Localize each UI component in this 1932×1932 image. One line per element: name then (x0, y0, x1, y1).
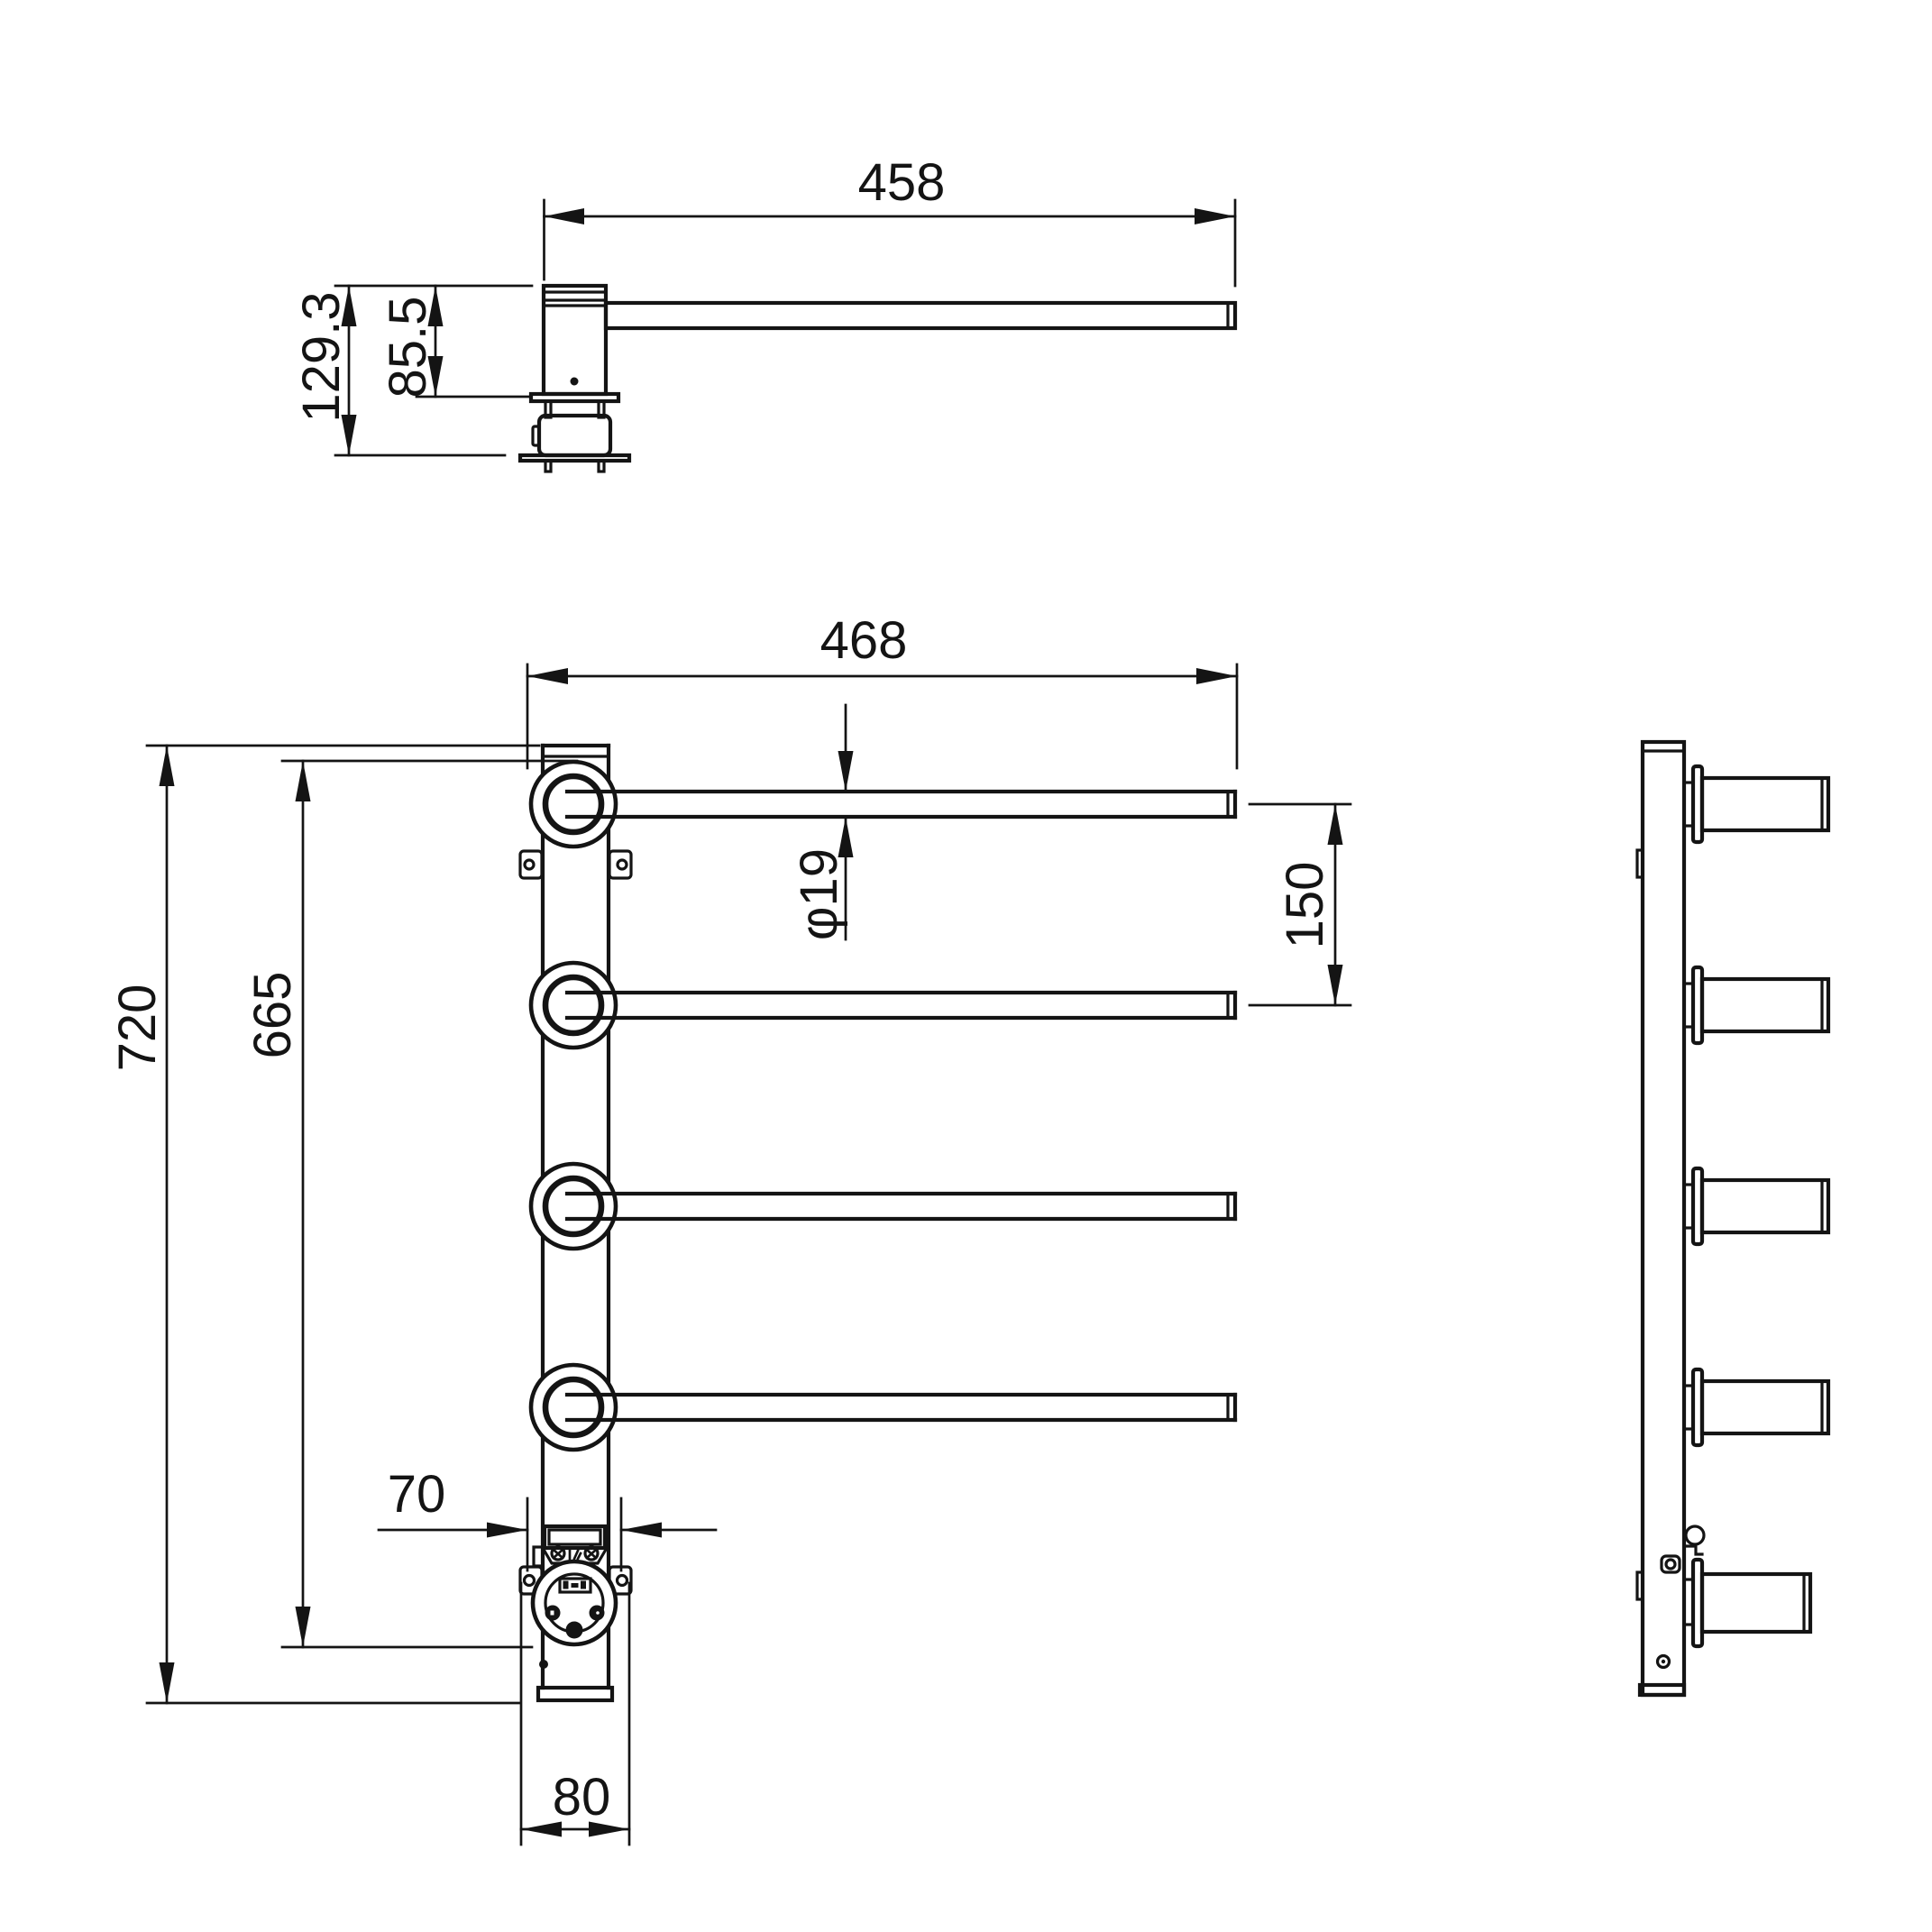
drawing-canvas: 458 129.3 85.5 (0, 0, 1932, 1932)
side-bar-cylinders (1684, 766, 1828, 1445)
side-bracket-tab-top (1637, 850, 1643, 877)
dim-label-665: 665 (243, 972, 302, 1059)
side-wall-plate (1637, 742, 1684, 1695)
dim-top-bar-length: 458 (545, 153, 1236, 286)
dim-label-85.5: 85.5 (379, 297, 437, 398)
side-socket-assembly (1658, 1526, 1811, 1668)
dim-front-bar-diameter: φ19 (790, 705, 854, 940)
front-wall-bracket-top (520, 851, 631, 878)
dim-label-720: 720 (108, 984, 167, 1072)
dim-label-150: 150 (1276, 862, 1334, 949)
dim-front-bar-spacing: 150 (1250, 804, 1351, 1005)
dim-label-458: 458 (858, 153, 946, 212)
clip-bracket (1684, 1546, 1702, 1554)
socket-pin-bottom (566, 1622, 583, 1639)
dim-label-129.3: 129.3 (292, 291, 351, 422)
indicator-dot (571, 378, 579, 386)
dim-label-phi19: φ19 (790, 848, 848, 940)
top-view-bar (606, 303, 1235, 328)
technical-drawing: 458 129.3 85.5 (0, 0, 1932, 1932)
front-power-socket (520, 1561, 631, 1644)
top-view: 458 129.3 85.5 (292, 153, 1235, 472)
top-view-mount-assembly (520, 394, 629, 472)
dim-front-total-width: 468 (527, 611, 1237, 768)
dim-label-70: 70 (388, 1465, 446, 1524)
side-bracket-tab-bottom (1637, 1572, 1643, 1599)
front-view: 468 φ19 150 720 (108, 611, 1351, 1845)
dim-label-468: 468 (820, 611, 908, 670)
top-view-pivot-cylinder (544, 286, 606, 394)
dim-front-total-height: 720 (108, 746, 539, 1703)
side-view (1637, 742, 1828, 1695)
dim-top-upper-depth: 85.5 (379, 286, 528, 398)
front-bars (531, 762, 1235, 1450)
post-detail-dot (539, 1660, 548, 1669)
cable-clip (1686, 1526, 1704, 1544)
dim-label-80: 80 (553, 1768, 611, 1827)
